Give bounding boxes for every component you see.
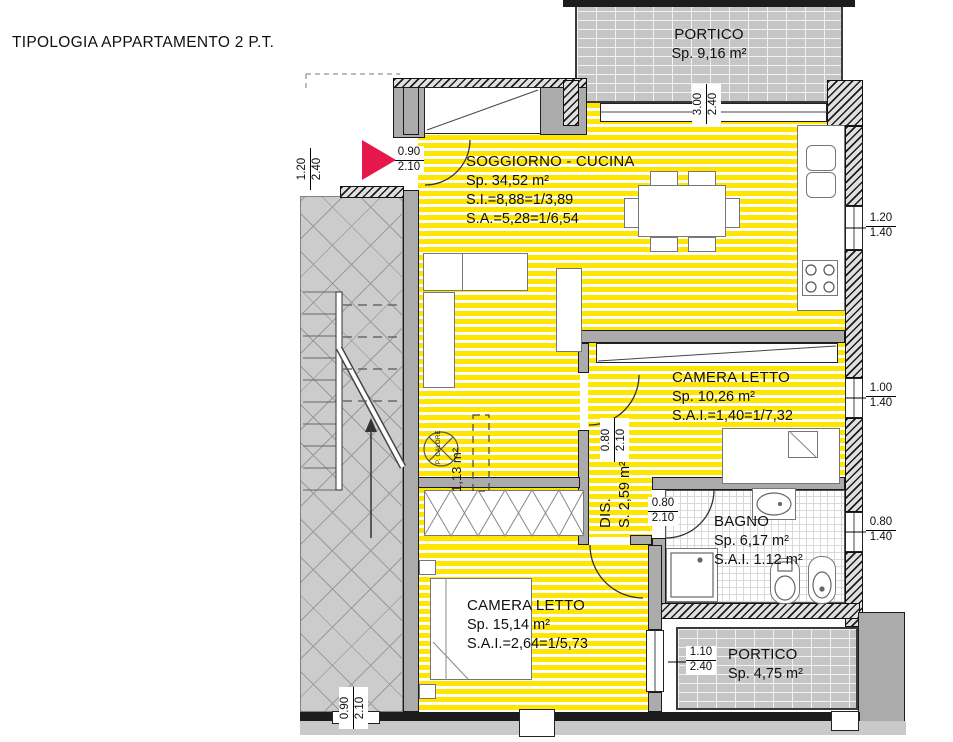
stair-railing [336, 292, 342, 490]
floor-plan: TIPOLOGIA APPARTAMENTO 2 P.T. SOGGIORNO … [0, 0, 953, 742]
label-soggiorno: SOGGIORNO - CUCINA Sp. 34,52 m² S.I.=8,8… [466, 152, 635, 229]
dim-portico-bottom-door: 1.102.40 [686, 646, 716, 675]
room-name: SOGGIORNO - CUCINA [466, 152, 635, 172]
entry-door-arc [425, 140, 470, 185]
room-area: Sp. 34,52 m² [466, 172, 635, 191]
room-area: Sp. 6,17 m² [714, 532, 803, 551]
hob-burners [806, 265, 834, 292]
room-name: CAMERA LETTO [467, 596, 588, 616]
label-camera1: CAMERA LETTO Sp. 10,26 m² S.A.I.=1,40=1/… [672, 368, 793, 426]
room-sai: S.A.I.=1,40=1/7,32 [672, 407, 793, 426]
room-area: Sp. 15,14 m² [467, 616, 588, 635]
bidet-bowl [813, 572, 831, 598]
dim-bagno-door: 0.802.10 [648, 497, 678, 526]
room-name: PORTICO [728, 645, 803, 665]
label-portico-top: PORTICO Sp. 9,16 m² [575, 25, 843, 64]
room-si: S.I.=8,88=1/3,89 [466, 191, 635, 210]
bed-single-fold [790, 432, 816, 457]
wardrobe-pattern [424, 490, 584, 536]
label-ripostiglio: 1,13 m² [449, 420, 464, 492]
label-bagno: BAGNO Sp. 6,17 m² S.A.I. 1.12 m² [714, 512, 803, 570]
room-name: BAGNO [714, 512, 803, 532]
closet-diagonal [598, 346, 836, 361]
label-portico-bottom: PORTICO Sp. 4,75 m² [728, 645, 803, 684]
room-name: PORTICO [575, 25, 843, 45]
room-sa: S.A.=5,28=1/6,54 [466, 210, 635, 229]
bed-double-fold [433, 642, 468, 679]
room-sai: S.A.I. 1.12 m² [714, 551, 803, 570]
room-area: Sp. 10,26 m² [672, 388, 793, 407]
roof-dashed-outline [306, 74, 400, 92]
room-area: Sp. 9,16 m² [575, 45, 843, 64]
dim-camera1-window: 1.001.40 [866, 382, 896, 411]
entrance-arrow-icon [362, 140, 396, 180]
toilet-bowl [775, 576, 795, 600]
dim-left-window: 1.202.40 [296, 148, 325, 190]
room-area: Sp. 4,75 m² [728, 665, 803, 684]
dim-entry-door: 0.902.10 [394, 146, 424, 175]
shower-tray [671, 553, 713, 597]
dim-portico-top-window: 3.002.40 [692, 84, 721, 124]
page-title: TIPOLOGIA APPARTAMENTO 2 P.T. [12, 34, 274, 52]
label-heat-point: P. CALORE [436, 430, 442, 464]
kitchen-window-diagonal [427, 90, 538, 130]
dim-bottom-left-door: 0.902.10 [339, 687, 368, 729]
room-sai: S.A.I.=2,64=1/5,73 [467, 635, 588, 654]
room-name: CAMERA LETTO [672, 368, 793, 388]
camera2-door-arc [590, 545, 643, 598]
dim-kitchen-window: 1.201.40 [866, 212, 896, 241]
label-camera2: CAMERA LETTO Sp. 15,14 m² S.A.I.=2,64=1/… [467, 596, 588, 654]
dim-bagno-window: 0.801.40 [866, 516, 896, 545]
ripostiglio-dashed [473, 415, 489, 491]
dim-camera1-door: 0.802.10 [600, 418, 629, 462]
stair-dashed-lines [343, 305, 402, 401]
